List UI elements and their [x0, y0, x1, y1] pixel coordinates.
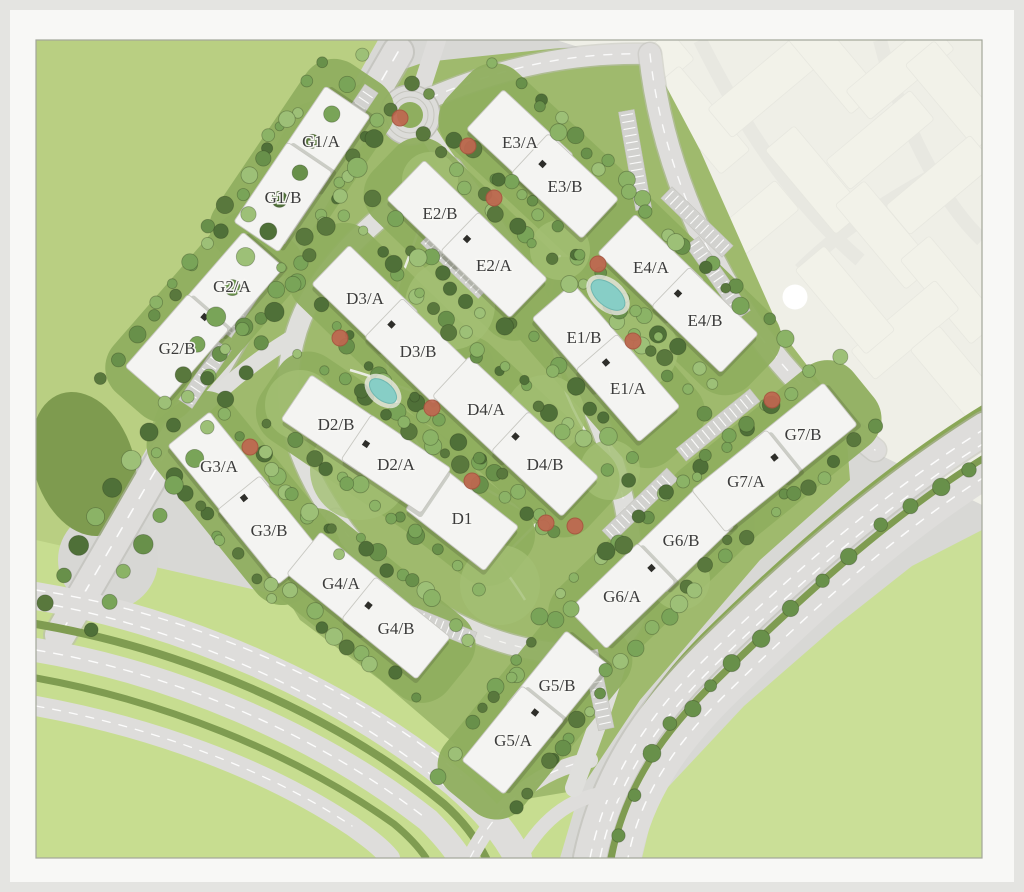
tree-icon [550, 124, 567, 141]
red-tree-icon [424, 400, 440, 416]
tree-icon [962, 463, 977, 478]
tree-icon [474, 308, 485, 319]
tree-icon [241, 167, 258, 184]
tree-icon [416, 127, 431, 142]
tree-icon [202, 237, 214, 249]
tree-icon [510, 218, 526, 234]
tree-icon [435, 146, 447, 158]
tree-icon [496, 318, 513, 335]
building-label[interactable]: G5/B [539, 676, 576, 695]
tree-icon [317, 57, 328, 68]
building-label[interactable]: G3/B [251, 521, 288, 540]
tree-icon [356, 533, 365, 542]
tree-icon [347, 157, 367, 177]
tree-icon [500, 362, 510, 372]
tree-icon [555, 588, 565, 598]
tree-icon [405, 76, 420, 91]
tree-icon [517, 189, 527, 199]
building-label[interactable]: D2/A [377, 455, 416, 474]
tree-icon [265, 302, 284, 321]
tree-icon [847, 433, 861, 447]
tree-icon [472, 583, 485, 596]
tree-icon [546, 253, 558, 265]
tree-icon [670, 595, 688, 613]
tree-icon [181, 390, 194, 403]
tree-icon [285, 276, 301, 292]
tree-icon [699, 449, 711, 461]
tree-icon [659, 485, 674, 500]
tree-icon [533, 401, 544, 412]
tree-icon [628, 640, 644, 656]
tree-icon [529, 331, 540, 342]
red-tree-icon [460, 138, 476, 154]
tree-icon [692, 472, 701, 481]
tree-icon [707, 378, 718, 389]
tree-icon [340, 477, 354, 491]
tree-icon [200, 371, 214, 385]
tree-icon [563, 601, 579, 617]
tree-icon [314, 297, 329, 312]
tree-icon [599, 427, 617, 445]
tree-icon [415, 288, 425, 298]
tree-icon [103, 478, 122, 497]
tree-icon [140, 423, 158, 441]
tree-icon [450, 163, 464, 177]
tree-icon [254, 336, 268, 350]
tree-icon [332, 322, 341, 331]
building-label[interactable]: E4/A [633, 258, 670, 277]
tree-icon [739, 530, 754, 545]
tree-icon [622, 473, 636, 487]
tree-icon [423, 589, 440, 606]
tree-icon [771, 507, 780, 516]
tree-icon [527, 239, 536, 248]
tree-icon [277, 263, 287, 273]
tree-icon [380, 409, 391, 420]
tree-icon [546, 365, 559, 378]
tree-icon [301, 75, 313, 87]
tree-icon [511, 655, 522, 666]
tree-icon [785, 387, 798, 400]
tree-icon [466, 715, 480, 729]
tree-icon [527, 195, 538, 206]
tree-icon [626, 451, 638, 463]
tree-icon [555, 740, 571, 756]
building-label[interactable]: D1 [452, 509, 473, 528]
tree-icon [492, 173, 505, 186]
tree-icon [654, 332, 663, 341]
tree-icon [424, 89, 435, 100]
tree-icon [718, 549, 732, 563]
tree-icon [722, 535, 732, 545]
tree-icon [803, 365, 816, 378]
tree-icon [645, 620, 659, 634]
tree-icon [259, 446, 272, 459]
tree-icon [683, 384, 694, 395]
location-marker[interactable] [783, 285, 808, 310]
tree-icon [216, 196, 233, 213]
tree-icon [561, 276, 578, 293]
tree-icon [296, 228, 313, 245]
tree-icon [574, 249, 585, 260]
tree-icon [732, 297, 749, 314]
tree-icon [385, 255, 402, 272]
building-label[interactable]: G7/B [785, 425, 822, 444]
tree-icon [597, 542, 615, 560]
red-tree-icon [567, 518, 583, 534]
tree-icon [592, 163, 605, 176]
tree-icon [450, 434, 467, 451]
tree-icon [232, 548, 244, 560]
tree-icon [150, 296, 163, 309]
tree-icon [506, 672, 517, 683]
tree-icon [301, 503, 319, 521]
tree-icon [458, 294, 472, 308]
tree-icon [657, 349, 673, 365]
tree-icon [443, 282, 456, 295]
tree-icon [827, 455, 839, 467]
building-label[interactable]: G3/A [200, 457, 239, 476]
tree-icon [568, 711, 585, 728]
building-label[interactable]: G7/A [727, 472, 766, 491]
tree-icon [552, 220, 564, 232]
tree-icon [601, 464, 614, 477]
tree-icon [436, 266, 451, 281]
tree-icon [303, 248, 316, 261]
tree-icon [739, 416, 755, 432]
tree-icon [293, 349, 302, 358]
tree-icon [256, 151, 271, 166]
building-label[interactable]: E2/B [423, 204, 458, 223]
red-tree-icon [464, 473, 480, 489]
tree-icon [721, 283, 731, 293]
tree-icon [874, 518, 888, 532]
tree-icon [316, 622, 328, 634]
tree-icon [369, 500, 380, 511]
tree-icon [69, 535, 89, 555]
tree-icon [639, 205, 652, 218]
tree-icon [237, 189, 249, 201]
building-label[interactable]: D2/B [318, 415, 355, 434]
tree-icon [531, 608, 548, 625]
tree-icon [167, 279, 177, 289]
tree-icon [116, 564, 130, 578]
tree-icon [262, 419, 271, 428]
tree-icon [840, 548, 857, 565]
tree-icon [448, 747, 462, 761]
tree-icon [359, 226, 368, 235]
tree-icon [818, 472, 831, 485]
tree-icon [722, 442, 732, 452]
tree-icon [569, 573, 579, 583]
tree-icon [661, 370, 673, 382]
building-label[interactable]: E1/B [567, 328, 602, 347]
tree-icon [516, 78, 527, 89]
building-label[interactable]: D3/A [346, 289, 385, 308]
tree-icon [427, 302, 439, 314]
tree-icon [359, 541, 374, 556]
building-label[interactable]: E2/A [476, 256, 513, 275]
tree-icon [409, 249, 427, 267]
tree-icon [410, 392, 420, 402]
tree-icon [460, 326, 473, 339]
tree-icon [220, 344, 231, 355]
building-label[interactable]: D4/A [467, 400, 506, 419]
tree-icon [554, 424, 570, 440]
tree-icon [534, 101, 545, 112]
tree-icon [510, 801, 523, 814]
building-label[interactable]: D4/B [527, 455, 564, 474]
tree-icon [487, 206, 503, 222]
tree-icon [239, 366, 253, 380]
tree-icon [378, 246, 389, 257]
tree-icon [214, 535, 225, 546]
tree-icon [236, 322, 249, 335]
tree-icon [432, 544, 443, 555]
tree-icon [389, 666, 402, 679]
tree-icon [556, 111, 569, 124]
tree-icon [252, 574, 262, 584]
tree-icon [499, 491, 511, 503]
tree-icon [634, 190, 650, 206]
tree-icon [265, 462, 279, 476]
tree-icon [412, 693, 421, 702]
tree-icon [319, 462, 333, 476]
tree-icon [166, 418, 180, 432]
tree-icon [693, 362, 706, 375]
tree-icon [196, 501, 206, 511]
tree-icon [816, 574, 830, 588]
tree-icon [643, 744, 661, 762]
tree-icon [57, 568, 72, 583]
tree-icon [307, 603, 323, 619]
tree-icon [868, 419, 882, 433]
tree-icon [621, 184, 636, 199]
tree-icon [217, 391, 234, 408]
tree-icon [94, 372, 106, 384]
tree-icon [111, 353, 125, 367]
tree-icon [470, 343, 484, 357]
tree-icon [148, 309, 160, 321]
tree-icon [446, 132, 462, 148]
tree-icon [670, 338, 687, 355]
tree-icon [406, 573, 419, 586]
tree-icon [723, 654, 740, 671]
tree-icon [352, 476, 369, 493]
tree-icon [268, 281, 285, 298]
tree-icon [241, 207, 256, 222]
tree-icon [262, 129, 275, 142]
tree-icon [752, 630, 770, 648]
tree-icon [317, 217, 335, 235]
tree-icon [170, 289, 182, 301]
tree-icon [594, 688, 605, 699]
tree-icon [288, 432, 303, 447]
tree-icon [452, 560, 463, 571]
tree-icon [903, 498, 918, 513]
tree-icon [478, 703, 488, 713]
tree-icon [677, 475, 690, 488]
building-label[interactable]: G4/B [378, 619, 415, 638]
tree-icon [175, 367, 191, 383]
building-label[interactable]: G5/A [494, 731, 533, 750]
tree-icon [325, 628, 342, 645]
tree-icon [339, 373, 351, 385]
tree-icon [364, 362, 373, 371]
tree-icon [488, 691, 500, 703]
tree-icon [87, 508, 105, 526]
tree-icon [575, 430, 592, 447]
tree-icon [667, 234, 684, 251]
tree-icon [581, 148, 592, 159]
tree-icon [597, 412, 609, 424]
tree-icon [84, 623, 98, 637]
tree-icon [787, 486, 801, 500]
tree-icon [386, 513, 397, 524]
tree-icon [599, 663, 612, 676]
tree-icon [487, 58, 498, 69]
tree-icon [408, 524, 422, 538]
tree-icon [339, 640, 354, 655]
tree-icon [121, 450, 141, 470]
tree-icon [327, 524, 337, 534]
tree-icon [430, 769, 446, 785]
tree-icon [324, 106, 340, 122]
tree-icon [133, 534, 153, 554]
tree-icon [801, 480, 817, 496]
tree-icon [698, 557, 713, 572]
tree-icon [264, 577, 278, 591]
tree-icon [615, 536, 633, 554]
tree-icon [201, 219, 215, 233]
tree-icon [520, 375, 530, 385]
red-tree-icon [764, 392, 780, 408]
tree-icon [279, 111, 296, 128]
tree-icon [526, 637, 536, 647]
tree-icon [333, 189, 347, 203]
tree-icon [520, 507, 534, 521]
tree-icon [522, 788, 533, 799]
tree-icon [722, 428, 736, 442]
tree-icon [423, 430, 439, 446]
tree-icon [645, 346, 656, 357]
tree-icon [782, 600, 798, 616]
red-tree-icon [332, 330, 348, 346]
building-label[interactable]: D3/B [400, 342, 437, 361]
tree-icon [158, 396, 171, 409]
tree-icon [462, 634, 474, 646]
tree-icon [380, 564, 394, 578]
building-label[interactable]: G2/A [213, 277, 252, 296]
tree-icon [612, 829, 625, 842]
tree-icon [236, 247, 255, 266]
tree-icon [541, 753, 557, 769]
tree-icon [532, 209, 544, 221]
tree-icon [505, 174, 520, 189]
tree-icon [685, 700, 702, 717]
tree-icon [387, 211, 403, 227]
building-label[interactable]: G1/B [265, 188, 302, 207]
tree-icon [153, 508, 167, 522]
tree-icon [320, 366, 329, 375]
tree-icon [613, 653, 629, 669]
tree-icon [267, 594, 277, 604]
tree-icon [449, 619, 462, 632]
building-label[interactable]: G2/B [159, 339, 196, 358]
tree-icon [704, 680, 716, 692]
red-tree-icon [242, 439, 258, 455]
red-tree-icon [590, 256, 606, 272]
tree-icon [37, 595, 53, 611]
tree-icon [699, 261, 712, 274]
tree-icon [451, 456, 469, 474]
tree-icon [777, 330, 794, 347]
tree-icon [235, 431, 245, 441]
tree-icon [362, 656, 378, 672]
tree-icon [206, 307, 225, 326]
tree-icon [356, 48, 369, 61]
tree-icon [292, 165, 308, 181]
building-label[interactable]: E3/B [548, 177, 583, 196]
tree-icon [585, 707, 595, 717]
tree-icon [338, 210, 350, 222]
tree-icon [583, 402, 597, 416]
tree-icon [182, 254, 198, 270]
tree-icon [440, 449, 449, 458]
building-label[interactable]: G1/A [302, 132, 341, 151]
tree-icon [365, 130, 383, 148]
tree-icon [285, 487, 298, 500]
tree-icon [697, 406, 712, 421]
site-plan-frame: G1/AG1/BG2/AG2/BG3/AG3/BG4/AG4/BG5/BG5/A… [0, 0, 1024, 892]
tree-icon [567, 127, 584, 144]
tree-icon [628, 789, 641, 802]
tree-icon [458, 181, 472, 195]
tree-icon [370, 113, 384, 127]
tree-icon [440, 325, 456, 341]
tree-icon [364, 190, 381, 207]
tree-icon [334, 549, 345, 560]
tree-icon [200, 420, 214, 434]
building-label[interactable]: G6/B [663, 531, 700, 550]
building-label[interactable]: G6/A [603, 587, 642, 606]
tree-icon [511, 484, 526, 499]
tree-icon [398, 416, 410, 428]
tree-icon [567, 377, 585, 395]
building-label[interactable]: E1/A [610, 379, 647, 398]
site-plan-map: G1/AG1/BG2/AG2/BG3/AG3/BG4/AG4/BG5/BG5/A… [0, 0, 1024, 892]
tree-icon [339, 76, 355, 92]
building-label[interactable]: E4/B [688, 311, 723, 330]
tree-icon [102, 594, 117, 609]
tree-icon [497, 468, 508, 479]
tree-icon [547, 611, 564, 628]
tree-icon [932, 478, 950, 496]
tree-icon [260, 223, 277, 240]
tree-icon [728, 279, 743, 294]
tree-icon [129, 326, 146, 343]
red-tree-icon [486, 190, 502, 206]
tree-icon [165, 476, 184, 495]
tree-icon [214, 224, 229, 239]
tree-icon [833, 349, 848, 364]
tree-icon [473, 452, 485, 464]
red-tree-icon [625, 333, 641, 349]
red-tree-icon [392, 110, 408, 126]
building-label[interactable]: G4/A [322, 574, 361, 593]
building-label[interactable]: E3/A [502, 133, 539, 152]
tree-icon [630, 305, 642, 317]
